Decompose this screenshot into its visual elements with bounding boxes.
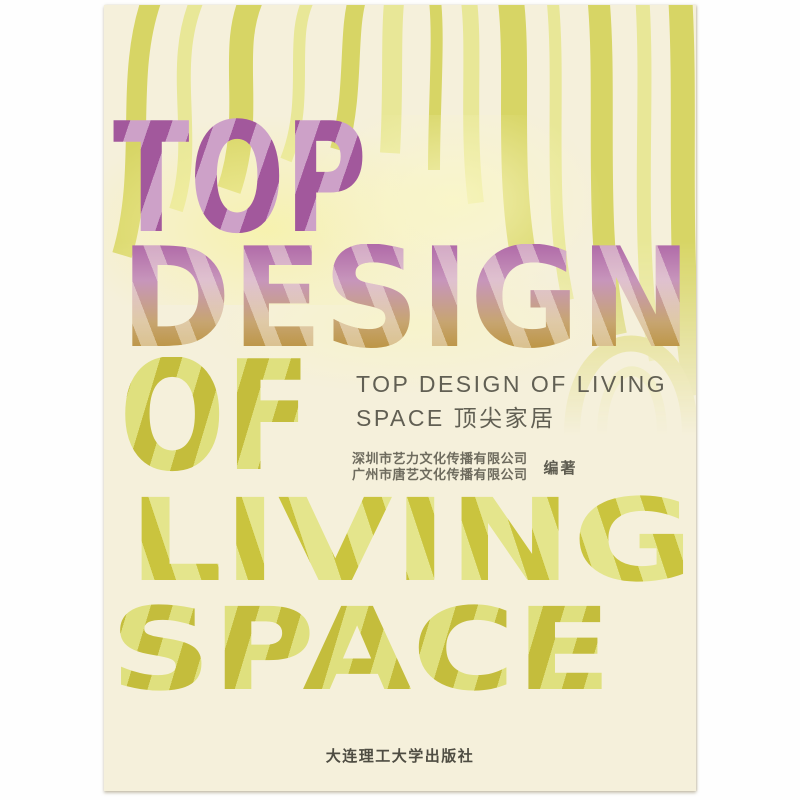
title-word-design-stripes: DESIGN	[120, 244, 692, 350]
book-cover-photo: TOP DESIGN DESIGN OF LIVING SPACE TOP DE…	[0, 0, 800, 800]
credits-block: 深圳市艺力文化传播有限公司 广州市唐艺文化传播有限公司 编著	[352, 451, 578, 483]
book-cover: TOP DESIGN DESIGN OF LIVING SPACE TOP DE…	[104, 5, 696, 791]
title-word-top-text: TOP	[113, 115, 367, 235]
credit-line-2: 广州市唐艺文化传播有限公司	[352, 467, 528, 483]
title-word-space-text: SPACE	[110, 603, 612, 693]
credit-role: 编著	[544, 457, 578, 478]
publisher-name: 大连理工大学出版社	[104, 745, 696, 766]
title-word-of-text: OF	[119, 357, 311, 473]
credit-line-1: 深圳市艺力文化传播有限公司	[352, 451, 528, 467]
title-word-space: SPACE	[108, 603, 616, 693]
title-word-design: DESIGN DESIGN	[118, 244, 694, 350]
title-word-top: TOP	[110, 115, 370, 235]
subtitle: TOP DESIGN OF LIVING SPACE 顶尖家居	[356, 367, 696, 435]
title-word-living-text: LIVING	[128, 494, 694, 584]
subtitle-line-1: TOP DESIGN OF LIVING	[356, 367, 696, 401]
title-word-of: OF	[117, 357, 315, 473]
title-word-living: LIVING	[126, 494, 696, 584]
credit-lines: 深圳市艺力文化传播有限公司 广州市唐艺文化传播有限公司	[352, 451, 528, 483]
subtitle-line-2: SPACE 顶尖家居	[356, 401, 696, 435]
